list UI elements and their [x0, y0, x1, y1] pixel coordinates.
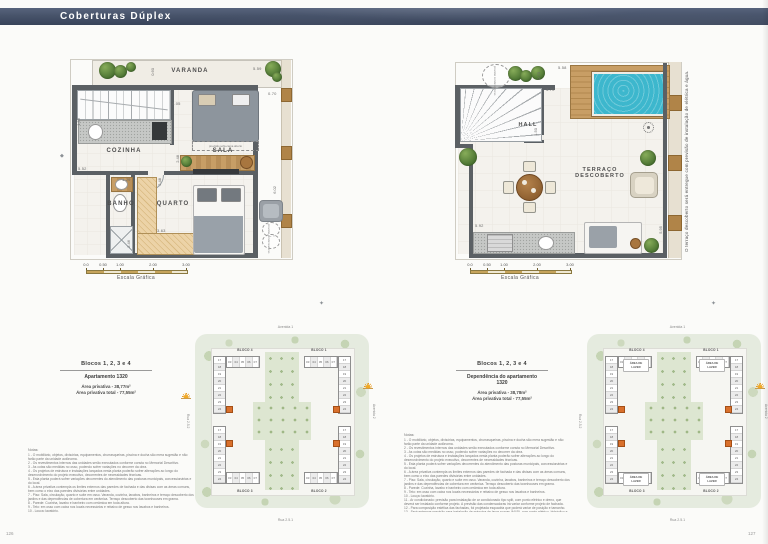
unit-cell: 17 — [731, 357, 742, 364]
dining-table — [516, 174, 543, 201]
closet — [137, 233, 195, 255]
pool — [592, 72, 666, 116]
armchair — [259, 200, 283, 222]
unit-cell: 18 — [339, 434, 350, 441]
planter-box — [668, 155, 682, 171]
building-tower: 1718192021222324 — [605, 356, 618, 414]
unit-cell: 07 — [331, 357, 337, 367]
compass-icon: ◆ — [60, 154, 64, 159]
planter-box — [668, 215, 682, 231]
unit-cell: 23 — [214, 399, 225, 406]
block-label: BLOCO 3 — [613, 489, 661, 493]
unit-cell: 20 — [731, 448, 742, 455]
building-tower: 1718192021222324 — [338, 426, 351, 484]
condenser-area — [262, 234, 280, 249]
note-line: 1 - O mobiliário, objetos, divisórias, e… — [28, 453, 194, 461]
building-slab: 0304050607 — [226, 472, 260, 484]
unit-cell: 20 — [214, 378, 225, 385]
chair — [523, 161, 536, 172]
note-line: 4 - Os projetos de estrutura e instalaçõ… — [404, 454, 570, 462]
unit-cell: 17 — [339, 427, 350, 434]
unit-cell: 19 — [606, 441, 617, 448]
dim-label: 1.50 — [533, 128, 538, 136]
note-line: 6 - A área privativa contempla os limite… — [28, 485, 194, 493]
closet — [137, 177, 157, 237]
compass-icon: ✦ — [319, 301, 324, 307]
plant — [459, 148, 477, 166]
page-title: Coberturas Dúplex — [60, 11, 172, 22]
unit-cell: 17 — [731, 427, 742, 434]
info-blocks-title: Blocos 1, 2, 3 e 4 — [448, 361, 556, 367]
unit-cell: 23 — [731, 399, 742, 406]
chair — [523, 202, 536, 213]
area-lazer-label: ÁREA DE LAZER — [699, 473, 725, 486]
scale-tick-label: 0.0 — [467, 262, 473, 267]
scale-caption: Escala Gráfica — [86, 275, 186, 281]
condenser-label: previsão condensadoras — [493, 66, 496, 95]
terrace-side-note: O terraço descoberto será entregue com p… — [684, 62, 689, 260]
block-label: BLOCO 2 — [687, 489, 735, 493]
info-block-right: Blocos 1, 2, 3 e 4 Dependência do aparta… — [448, 361, 556, 403]
dim-label: 2.48 — [157, 178, 162, 186]
bed-blanket — [194, 216, 243, 253]
building-tower: 1718192021222324 — [213, 356, 226, 414]
street-label-top: Avenida 1 — [585, 325, 768, 329]
unit-cell: 19 — [731, 441, 742, 448]
site-courtyard-center — [645, 402, 703, 440]
unit-cell: 18 — [606, 364, 617, 371]
planter-box — [668, 95, 682, 111]
armchair — [630, 172, 658, 198]
divider — [60, 370, 152, 371]
page-number-right: 127 — [748, 531, 756, 536]
unit-cell: 20 — [339, 378, 350, 385]
planter-box — [281, 146, 292, 160]
note-line: 1 - O mobiliário, objetos, divisórias, e… — [404, 438, 570, 446]
scale-tick-label: 1.00 — [500, 262, 508, 267]
note-line: 5 - Esta planta poderá sofrer variações … — [404, 462, 570, 470]
dim-label: 2.48 — [175, 155, 180, 163]
room-label-sala: SALA — [205, 148, 241, 154]
note-line: 13 - Será entregue previsão para instala… — [404, 510, 570, 512]
terraco-line2: DESCOBERTO — [568, 173, 632, 179]
street-label-right: Avenida 2 — [372, 404, 376, 419]
plant — [644, 238, 659, 253]
stove — [152, 122, 167, 140]
block-label: BLOCO 2 — [295, 489, 343, 493]
unit-cell: 24 — [339, 476, 350, 483]
unit-cell: 23 — [214, 469, 225, 476]
featured-unit-marker — [333, 440, 340, 447]
scalebar-upper: 0.00.501.002.003.00Escala Gráfica — [470, 262, 570, 282]
area-lazer-label: ÁREA DE LAZER — [623, 359, 649, 372]
unit-cell: 22 — [339, 392, 350, 399]
unit-cell: 21 — [606, 385, 617, 392]
unit-cell: 24 — [731, 406, 742, 413]
site-courtyard-center — [253, 402, 311, 440]
unit-cell: 19 — [339, 441, 350, 448]
scale-tick-label: 0.50 — [99, 262, 107, 267]
unit-cell: 24 — [606, 406, 617, 413]
bed-pillow — [221, 188, 241, 202]
unit-cell: 18 — [731, 364, 742, 371]
info-area-total: Área privativa total - 77,55m² — [52, 390, 160, 396]
unit-cell: 18 — [214, 434, 225, 441]
siteplan-left: Avenida 11718192021222324030405060717181… — [193, 322, 378, 524]
unit-cell: 07 — [253, 473, 259, 483]
scale-tick-label: 0.0 — [83, 262, 89, 267]
unit-cell: 24 — [606, 476, 617, 483]
unit-cell: 23 — [606, 399, 617, 406]
note-line: 7 - Piso: Sala, circulação, quarto e suí… — [28, 493, 194, 501]
unit-cell: 22 — [731, 392, 742, 399]
unit-cell: 20 — [731, 378, 742, 385]
unit-cell: 22 — [339, 462, 350, 469]
unit-cell: 20 — [606, 378, 617, 385]
dim-label: 6.02 — [272, 186, 277, 194]
featured-unit-marker — [618, 440, 625, 447]
dim-label: 3.70 — [546, 87, 555, 92]
stairs — [77, 90, 171, 120]
unit-cell: 18 — [214, 364, 225, 371]
featured-unit-marker — [333, 406, 340, 413]
room-label-hall: HALL — [512, 122, 544, 128]
unit-cell: 17 — [214, 427, 225, 434]
unit-cell: 07 — [331, 473, 337, 483]
street-label-bottom: Rua 2.5.1 — [585, 518, 768, 522]
dim-label: 5.92 — [475, 223, 484, 228]
stairs — [460, 88, 542, 142]
unit-cell: 24 — [339, 406, 350, 413]
decor-bowl — [240, 156, 253, 169]
info-area-total: Área privativa total - 77,55m² — [448, 396, 556, 402]
dim-label: 1.29 — [122, 177, 131, 182]
unit-cell: 17 — [606, 427, 617, 434]
scale-tick-label: 2.00 — [533, 262, 541, 267]
planter-box — [281, 88, 292, 102]
note-line: 11 - Ar condicionado: previsão para inst… — [404, 498, 570, 506]
block-label: BLOCO 4 — [221, 348, 269, 352]
scale-tick-label: 0.50 — [483, 262, 491, 267]
notes-title: Notas: — [28, 448, 194, 452]
condenser-label: previsão condensadoras — [267, 224, 270, 253]
room-label-terraco: TERRAÇO DESCOBERTO — [568, 167, 632, 179]
dim-label: 0.70 — [268, 91, 277, 96]
room-label-banho: BANHO — [99, 201, 143, 207]
street-label-left: Rua 2.5.2 — [186, 414, 190, 428]
room-label-quarto: QUARTO — [153, 201, 193, 207]
unit-cell: 20 — [339, 448, 350, 455]
bed-pillow — [197, 188, 217, 202]
unit-cell: 21 — [731, 385, 742, 392]
notes-title: Notas: — [404, 433, 570, 437]
featured-unit-marker — [618, 406, 625, 413]
info-blocks-title: Blocos 1, 2, 3 e 4 — [52, 361, 160, 367]
scale-bar — [470, 270, 572, 275]
note-line: 6 - A área privativa contempla os limite… — [404, 470, 570, 478]
unit-cell: 19 — [339, 371, 350, 378]
unit-cell: 24 — [214, 406, 225, 413]
scale-tick-label: 3.00 — [182, 262, 190, 267]
sofa-pillow — [198, 94, 216, 106]
scale-caption: Escala Gráfica — [470, 275, 570, 281]
unit-cell: 24 — [214, 476, 225, 483]
brochure-spread: Coberturas Dúplex previsão sofá-cama abe… — [0, 0, 768, 544]
chair — [503, 181, 514, 194]
street-label-left: Rua 2.5.2 — [578, 414, 582, 428]
notes-left: Notas:1 - O mobiliário, objetos, divisór… — [28, 448, 194, 512]
info-unit: Apartamento 1320 — [52, 374, 160, 380]
building-slab: 0304050607 — [304, 356, 338, 368]
street-label-bottom: Rua 2.5.1 — [193, 518, 378, 522]
unit-cell: 23 — [731, 469, 742, 476]
dim-label: 0.60 — [150, 68, 155, 76]
room-label-varanda: VARANDA — [155, 68, 225, 74]
unit-cell: 21 — [339, 455, 350, 462]
dim-label: 2.46 — [126, 240, 131, 248]
building-slab: 0304050607 — [226, 356, 260, 368]
unit-cell: 18 — [606, 434, 617, 441]
note-line: 7 - Piso: Sala, circulação, quarto e suí… — [404, 478, 570, 486]
building-tower: 1718192021222324 — [213, 426, 226, 484]
unit-cell: 22 — [606, 392, 617, 399]
side-table — [630, 238, 641, 249]
scalebar-lower: 0.00.501.002.003.00Escala Gráfica — [86, 262, 186, 282]
unit-cell: 22 — [731, 462, 742, 469]
kitchen-sink — [88, 124, 103, 140]
area-lazer-label: ÁREA DE LAZER — [623, 473, 649, 486]
wall — [663, 63, 667, 258]
dim-label: 4.05 — [172, 101, 181, 106]
condenser-area — [482, 64, 510, 88]
dim-label: 5.95 — [658, 226, 663, 234]
street-label-top: Avenida 1 — [193, 325, 378, 329]
dim-label: 5.59 — [253, 66, 262, 71]
unit-cell: 19 — [214, 441, 225, 448]
unit-cell: 22 — [606, 462, 617, 469]
block-label: BLOCO 3 — [221, 489, 269, 493]
unit-cell: 19 — [214, 371, 225, 378]
info-block-left: Blocos 1, 2, 3 e 4 Apartamento 1320 Área… — [52, 361, 160, 397]
unit-cell: 21 — [339, 385, 350, 392]
note-line: 10 - Louça: lavatório. — [28, 509, 194, 512]
featured-unit-marker — [725, 440, 732, 447]
header-bar: Coberturas Dúplex — [0, 8, 768, 25]
unit-cell: 23 — [339, 399, 350, 406]
page-number-left: 126 — [6, 531, 14, 536]
unit-cell: 17 — [339, 357, 350, 364]
scale-tick-label: 1.00 — [116, 262, 124, 267]
unit-cell: 23 — [339, 469, 350, 476]
chair — [545, 181, 556, 194]
area-lazer-label: ÁREA DE LAZER — [699, 359, 725, 372]
street-label-right: Avenida 2 — [764, 404, 768, 419]
sun-icon — [363, 382, 373, 389]
compass-icon: ✦ — [711, 301, 716, 307]
dim-label: 3.63 — [157, 228, 166, 233]
block-label: BLOCO 1 — [295, 348, 343, 352]
sun-icon — [181, 392, 191, 399]
siteplan-right: Avenida 11718192021222324030405060717181… — [585, 322, 768, 524]
dim-label: 5.58 — [558, 65, 567, 70]
unit-cell: 22 — [214, 392, 225, 399]
note-line: 5 - Esta planta poderá sofrer variações … — [28, 477, 194, 485]
featured-unit-marker — [725, 406, 732, 413]
unit-cell: 20 — [606, 448, 617, 455]
featured-unit-marker — [226, 440, 233, 447]
building-tower: 1718192021222324 — [730, 426, 743, 484]
appliance — [487, 234, 513, 252]
divider — [456, 370, 548, 371]
tv — [193, 169, 239, 174]
block-label: BLOCO 1 — [687, 348, 735, 352]
unit-cell: 21 — [606, 455, 617, 462]
wall — [110, 171, 148, 175]
sun-icon — [755, 382, 765, 389]
plant — [126, 62, 136, 72]
dim-label: 0.70 — [536, 72, 541, 80]
note-line: 4 - Os projetos de estrutura e instalaçõ… — [28, 469, 194, 477]
block-label: BLOCO 4 — [613, 348, 661, 352]
featured-unit-marker — [226, 406, 233, 413]
unit-cell: 23 — [606, 469, 617, 476]
plant — [181, 156, 192, 167]
scale-tick-label: 3.00 — [566, 262, 574, 267]
building-slab: 0304050607 — [304, 472, 338, 484]
plant — [640, 150, 656, 166]
counter-sink — [538, 236, 554, 250]
unit-cell: 17 — [606, 357, 617, 364]
building-tower: 1718192021222324 — [605, 426, 618, 484]
unit-cell: 21 — [214, 455, 225, 462]
unit-cell: 21 — [731, 455, 742, 462]
info-unit: Dependência do apartamento 1320 — [448, 374, 556, 386]
unit-cell: 24 — [731, 476, 742, 483]
unit-cell: 18 — [339, 364, 350, 371]
dim-label: 5.52 — [78, 166, 87, 171]
room-label-cozinha: COZINHA — [96, 148, 152, 154]
unit-cell: 17 — [214, 357, 225, 364]
unit-cell: 21 — [214, 385, 225, 392]
unit-cell: 20 — [214, 448, 225, 455]
unit-cell: 22 — [214, 462, 225, 469]
shower-point-icon — [643, 122, 654, 133]
unit-cell: 07 — [253, 357, 259, 367]
unit-cell: 18 — [731, 434, 742, 441]
scale-bar — [86, 270, 188, 275]
notes-right: Notas:1 - O mobiliário, objetos, divisór… — [404, 433, 570, 512]
dim-label: 1.59 — [76, 118, 81, 126]
unit-cell: 19 — [731, 371, 742, 378]
sofa-pillow — [232, 94, 250, 106]
scale-tick-label: 2.00 — [149, 262, 157, 267]
wall — [72, 171, 110, 175]
unit-cell: 19 — [606, 371, 617, 378]
plant — [272, 72, 282, 82]
